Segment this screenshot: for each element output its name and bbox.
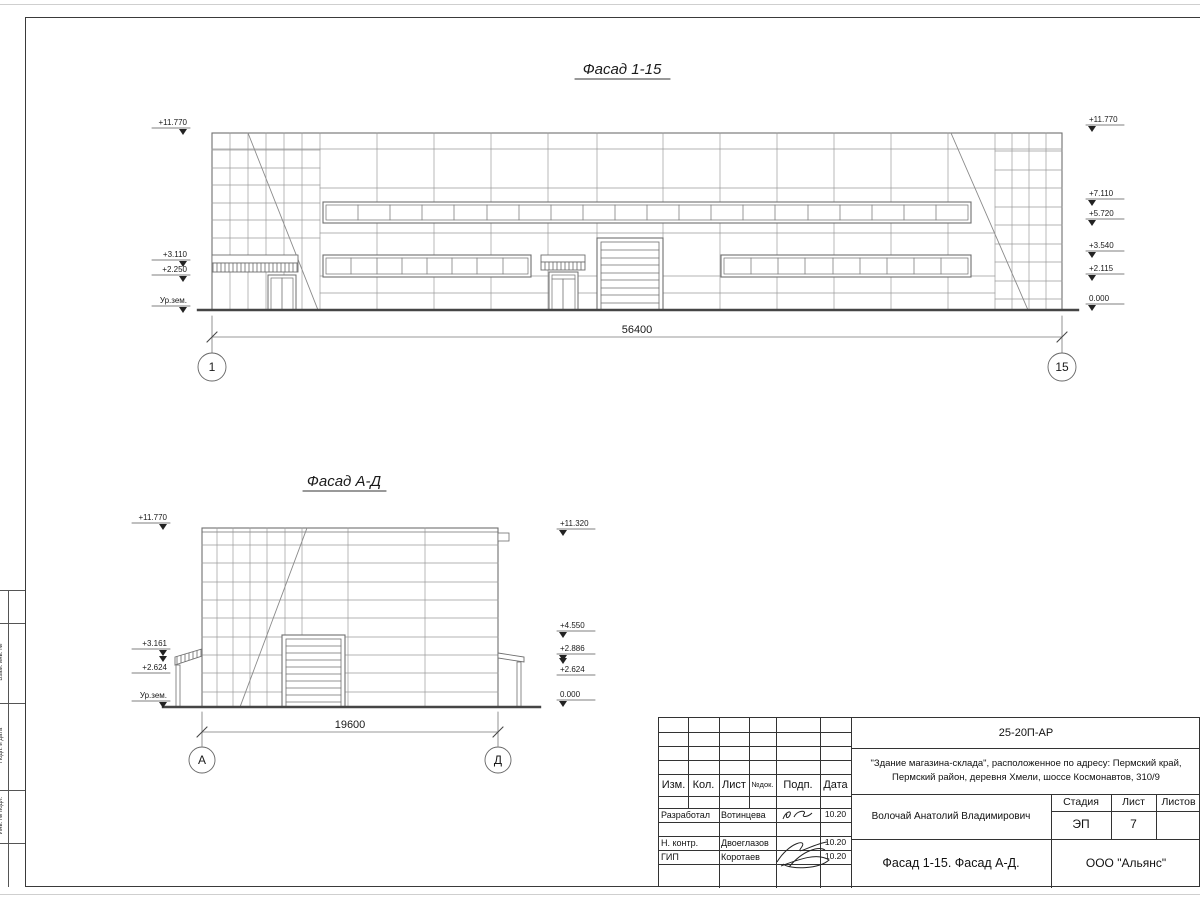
sheets-header: Листов <box>1156 794 1200 811</box>
svg-text:56400: 56400 <box>622 324 653 336</box>
axis-bubble-15: 15 <box>1048 353 1076 381</box>
elevation-mark: +4.550 <box>557 621 595 638</box>
elevation-mark: 0.000 <box>1086 294 1124 311</box>
dimension-19600: 19600 <box>197 712 503 746</box>
sheet-title: Фасад 1-15. Фасад А-Д. <box>851 839 1051 888</box>
staff-date: 10.20 <box>820 808 851 822</box>
facade-ad-title: Фасад А-Д <box>303 473 386 491</box>
stage-header: Стадия <box>1051 794 1111 811</box>
tbl-header-data: Дата <box>820 774 851 796</box>
axis-bubble-a: А <box>189 747 215 773</box>
svg-text:А: А <box>198 753 206 767</box>
svg-text:+2.250: +2.250 <box>162 265 187 274</box>
building-outline <box>202 528 498 707</box>
middle-entrance <box>541 255 585 310</box>
drawing-sheet: { "colors": { "line": "#7a7a7a", "dark":… <box>0 0 1200 900</box>
svg-text:Фасад 1-15: Фасад 1-15 <box>583 61 662 78</box>
svg-text:+5.720: +5.720 <box>1089 209 1114 218</box>
svg-text:+7.110: +7.110 <box>1089 189 1114 198</box>
project-object: "Здание магазина-склада", расположенное … <box>855 750 1197 792</box>
roller-gate <box>282 635 345 707</box>
project-object-line2: Пермский район, деревня Хмели, шоссе Кос… <box>892 771 1160 785</box>
tbl-header-kol: Кол. <box>688 774 719 796</box>
left-canopy <box>175 649 202 707</box>
facade-ad: Фасад А-Д <box>132 473 595 773</box>
elevation-mark: +2.115 <box>1086 264 1124 281</box>
staff-role: Разработал <box>661 808 719 822</box>
svg-text:+2.624: +2.624 <box>560 665 585 674</box>
signature-flourish <box>769 836 833 870</box>
stage-value: ЭП <box>1051 811 1111 839</box>
tbl-header-list: Лист <box>719 774 749 796</box>
right-canopy <box>498 653 524 707</box>
tbl-header-ndok: №док. <box>749 774 776 796</box>
svg-text:+3.161: +3.161 <box>142 639 167 648</box>
tbl-line <box>659 746 851 747</box>
roof-vent <box>498 533 509 541</box>
svg-text:Ур.зем.: Ур.зем. <box>140 691 167 700</box>
elevation-mark: +3.161 <box>132 639 170 656</box>
dimension-56400: 56400 <box>207 316 1067 353</box>
tbl-line <box>659 760 851 761</box>
tbl-header-podp: Подп. <box>776 774 820 796</box>
axis-bubble-d: Д <box>485 747 511 773</box>
title-block: Изм. Кол. Лист №док. Подп. Дата Разработ… <box>658 717 1200 887</box>
sheet-header: Лист <box>1111 794 1156 811</box>
staff-name: Коротаев <box>721 850 776 864</box>
elevation-mark: +2.250 <box>152 265 190 282</box>
elevation-mark: 0.000 <box>557 690 595 707</box>
left-tower-grid <box>212 133 320 310</box>
elevation-mark: Ур.зем. <box>152 296 190 313</box>
svg-text:Фасад А-Д: Фасад А-Д <box>307 473 382 490</box>
lower-window-band-right <box>721 255 971 277</box>
tbl-line <box>659 796 851 797</box>
facade-1-15: Фасад 1-15 <box>152 61 1124 381</box>
svg-text:+2.886: +2.886 <box>560 644 585 653</box>
staff-name: Двоеглазов <box>721 836 776 850</box>
staff-role: Н. контр. <box>661 836 719 850</box>
svg-text:+11.770: +11.770 <box>138 513 167 522</box>
tbl-header-izm: Изм. <box>659 774 688 796</box>
svg-text:0.000: 0.000 <box>1089 294 1110 303</box>
elevation-mark: +5.720 <box>1086 209 1124 226</box>
right-tower-grid <box>995 133 1062 310</box>
elevation-mark: +3.540 <box>1086 241 1124 258</box>
wall-grid <box>202 528 498 707</box>
svg-text:+2.115: +2.115 <box>1089 264 1114 273</box>
sheets-total <box>1156 811 1200 839</box>
upper-window-band <box>323 202 971 223</box>
tbl-line <box>659 732 851 733</box>
svg-text:Д: Д <box>494 753 502 767</box>
signature-razrabotal <box>777 808 820 822</box>
left-entrance <box>212 255 298 310</box>
svg-text:+11.770: +11.770 <box>1089 115 1118 124</box>
elevation-mark: +11.320 <box>557 519 595 536</box>
designer-name: Волочай Анатолий Владимирович <box>851 794 1051 839</box>
svg-text:+4.550: +4.550 <box>560 621 585 630</box>
elevation-mark: +7.110 <box>1086 189 1124 206</box>
lower-window-band-left <box>323 255 531 277</box>
svg-text:+11.320: +11.320 <box>560 519 589 528</box>
project-code: 25-20П-АР <box>851 718 1200 748</box>
svg-text:+3.110: +3.110 <box>163 250 188 259</box>
roller-gate <box>597 238 663 310</box>
elevation-mark: +2.624 <box>132 656 170 673</box>
elevation-mark: +11.770 <box>1086 115 1124 132</box>
sheet-number: 7 <box>1111 811 1156 839</box>
elevation-mark: +11.770 <box>132 513 170 530</box>
project-object-line1: "Здание магазина-склада", расположенное … <box>870 757 1181 771</box>
tbl-line <box>719 718 720 888</box>
facade-1-15-title: Фасад 1-15 <box>575 61 670 79</box>
svg-text:+11.770: +11.770 <box>158 118 187 127</box>
company-name: ООО "Альянс" <box>1051 839 1200 888</box>
elevation-mark: +2.624 <box>557 658 595 675</box>
svg-text:+2.624: +2.624 <box>142 663 167 672</box>
axis-bubble-1: 1 <box>198 353 226 381</box>
elevation-mark: +11.770 <box>152 118 190 135</box>
tbl-line <box>659 822 851 823</box>
svg-text:19600: 19600 <box>335 719 366 731</box>
svg-text:0.000: 0.000 <box>560 690 581 699</box>
staff-role: ГИП <box>661 850 719 864</box>
svg-text:15: 15 <box>1055 360 1069 374</box>
svg-text:+3.540: +3.540 <box>1089 241 1114 250</box>
elevation-mark: Ур.зем. <box>132 691 170 708</box>
svg-text:1: 1 <box>209 360 216 374</box>
staff-name: Вотинцева <box>721 808 776 822</box>
svg-text:Ур.зем.: Ур.зем. <box>160 296 187 305</box>
